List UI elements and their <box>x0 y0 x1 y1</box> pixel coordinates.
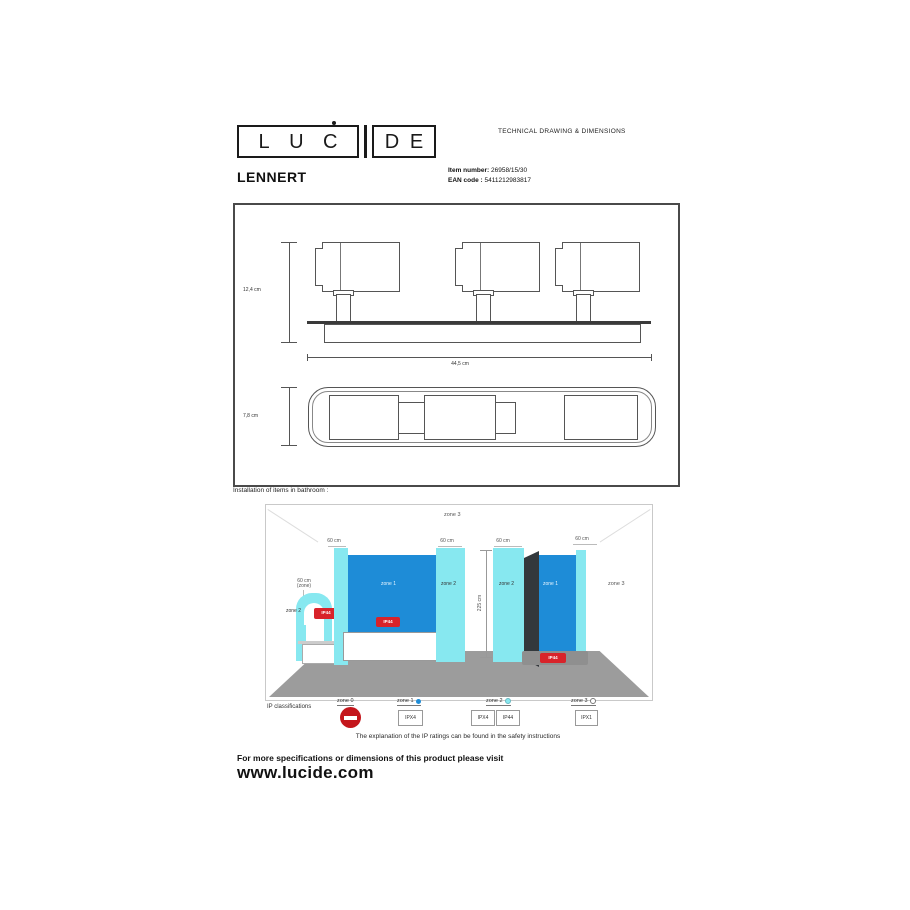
spot-head-top <box>564 395 638 440</box>
tub-zone1-label: zone 1 <box>381 581 396 587</box>
head-split-line <box>480 243 481 291</box>
zone3-color-dot-icon <box>590 698 596 704</box>
zone2-color-dot-icon <box>505 698 511 704</box>
ip-classifications-title: IP classifications <box>267 704 311 710</box>
legend-zone3-label: zone 3 <box>571 698 588 704</box>
ean-row: EAN code : 5411212983817 <box>448 176 531 186</box>
ceiling-zone-label: zone 3 <box>444 512 461 518</box>
shower-fixture-badge: IP44 <box>540 653 566 663</box>
zone1-color-dot-icon <box>416 699 421 704</box>
wall-height-dim-line <box>486 550 487 657</box>
legend-zone0-label: zone 0 <box>337 698 354 704</box>
head-cap <box>315 248 323 286</box>
footer-website-link[interactable]: www.lucide.com <box>237 763 374 783</box>
zone2-ip-box: IPX4 <box>471 710 495 726</box>
logo-i-dot <box>332 121 336 125</box>
technical-drawing-panel: 12,4 cm 44,5 cm 7,8 cm <box>233 203 680 487</box>
logo-letter: U <box>289 132 303 152</box>
tub-zone2-label: zone 2 <box>441 581 456 587</box>
top-view-connector <box>397 402 426 434</box>
top-dim-label: 60 cm <box>432 538 462 544</box>
legend-zone1: zone 1 <box>397 698 421 706</box>
dim-tick <box>281 387 297 388</box>
spot-head-front <box>322 242 400 292</box>
logo-letter: L <box>258 132 269 152</box>
spot-head-front <box>462 242 540 292</box>
doc-type-label: TECHNICAL DRAWING & DIMENSIONS <box>498 128 626 135</box>
basin-note: 60 cm (zone) <box>290 579 318 589</box>
wall-height-tick <box>480 657 492 658</box>
shower-zone1-label: zone 1 <box>543 581 558 587</box>
head-cap <box>455 248 463 286</box>
logo-letter: C <box>323 132 337 152</box>
ean-value: 5411212983817 <box>484 177 531 184</box>
ip-ratings-note: The explanation of the IP ratings can be… <box>265 733 651 740</box>
tub-zone2-strip-right <box>436 548 465 662</box>
logo-i-bar <box>364 125 367 158</box>
top-view-connector <box>494 402 516 434</box>
tub-fixture-badge: IP44 <box>376 617 400 627</box>
top-dim-label: 60 cm <box>567 536 597 542</box>
ean-label: EAN code : <box>448 177 483 184</box>
width-dimension-label: 44,5 cm <box>415 361 505 367</box>
base-recess <box>324 324 641 343</box>
no-entry-bar <box>344 716 357 720</box>
legend-zone0: zone 0 <box>337 698 354 706</box>
spot-stem <box>576 294 591 323</box>
top-dim-label: 60 cm <box>488 538 518 544</box>
wall-height-label: 225 cm <box>477 595 483 611</box>
item-number-label: Item number: <box>448 167 489 174</box>
spot-head-top <box>329 395 399 440</box>
shower-zone2-strip-left <box>493 548 524 662</box>
lucide-logo: L U C D E <box>237 125 436 158</box>
top-dim-tick <box>573 544 597 545</box>
height-dimension-label: 12,4 cm <box>243 287 261 293</box>
perspective-line <box>600 509 651 543</box>
perspective-line <box>267 509 318 543</box>
shower-zone1-wall <box>539 555 576 662</box>
right-wall-zone3-label: zone 3 <box>608 581 625 587</box>
logo-right-box: D E <box>372 125 436 158</box>
head-split-line <box>580 243 581 291</box>
shower-zone2-label: zone 2 <box>499 581 514 587</box>
basin-note-line2: (zone) <box>290 584 318 589</box>
spot-head-top <box>424 395 496 440</box>
depth-dimension-label: 7,8 cm <box>243 413 258 419</box>
product-sheet: L U C D E TECHNICAL DRAWING & DIMENSIONS… <box>0 0 910 910</box>
wall-height-tick <box>480 550 492 551</box>
basin-zone2-label: zone 2 <box>286 608 301 614</box>
bathtub <box>343 632 438 661</box>
dim-tick <box>651 354 652 361</box>
dim-tick <box>281 342 297 343</box>
top-dim-label: 60 cm <box>319 538 349 544</box>
footer-specifications-line: For more specifications or dimensions of… <box>237 753 503 763</box>
bathroom-zones-diagram: zone 3 60 cm 60 cm 60 cm 60 cm 60 cm (zo… <box>265 504 653 701</box>
dim-tick <box>307 354 308 361</box>
top-dim-tick <box>328 546 346 547</box>
shower-side-panel <box>524 551 539 667</box>
dim-line-height <box>289 242 290 343</box>
spot-stem <box>476 294 491 323</box>
head-cap <box>555 248 563 286</box>
legend-zone2-label: zone 2 <box>486 698 503 704</box>
legend-zone3: zone 3 <box>571 698 596 706</box>
item-number-value: 26958/15/30 <box>491 167 527 174</box>
bathroom-section-title: Installation of items in bathroom : <box>233 487 328 494</box>
product-name: LENNERT <box>237 169 307 185</box>
head-split-line <box>340 243 341 291</box>
spot-head-front <box>562 242 640 292</box>
dim-tick <box>281 242 297 243</box>
top-dim-tick <box>494 546 522 547</box>
zone2-ip-box: IP44 <box>496 710 520 726</box>
legend-zone1-label: zone 1 <box>397 698 414 704</box>
no-entry-icon <box>340 707 361 728</box>
zone3-ip-box: IPX1 <box>575 710 598 726</box>
logo-left-box: L U C <box>237 125 359 158</box>
zone1-ip-box: IPX4 <box>398 710 423 726</box>
logo-letter: E <box>410 132 423 152</box>
dim-line-width <box>307 357 652 358</box>
spot-stem <box>336 294 351 323</box>
product-meta: Item number: 26958/15/30 EAN code : 5411… <box>448 166 531 186</box>
top-dim-tick <box>438 546 462 547</box>
logo-letter: D <box>385 132 399 152</box>
dim-line-depth <box>289 387 290 445</box>
dim-tick <box>281 445 297 446</box>
basin-cabinet <box>302 644 338 664</box>
legend-zone2: zone 2 <box>486 698 511 706</box>
item-number-row: Item number: 26958/15/30 <box>448 166 531 176</box>
shower-zone2-sliver <box>576 550 586 660</box>
